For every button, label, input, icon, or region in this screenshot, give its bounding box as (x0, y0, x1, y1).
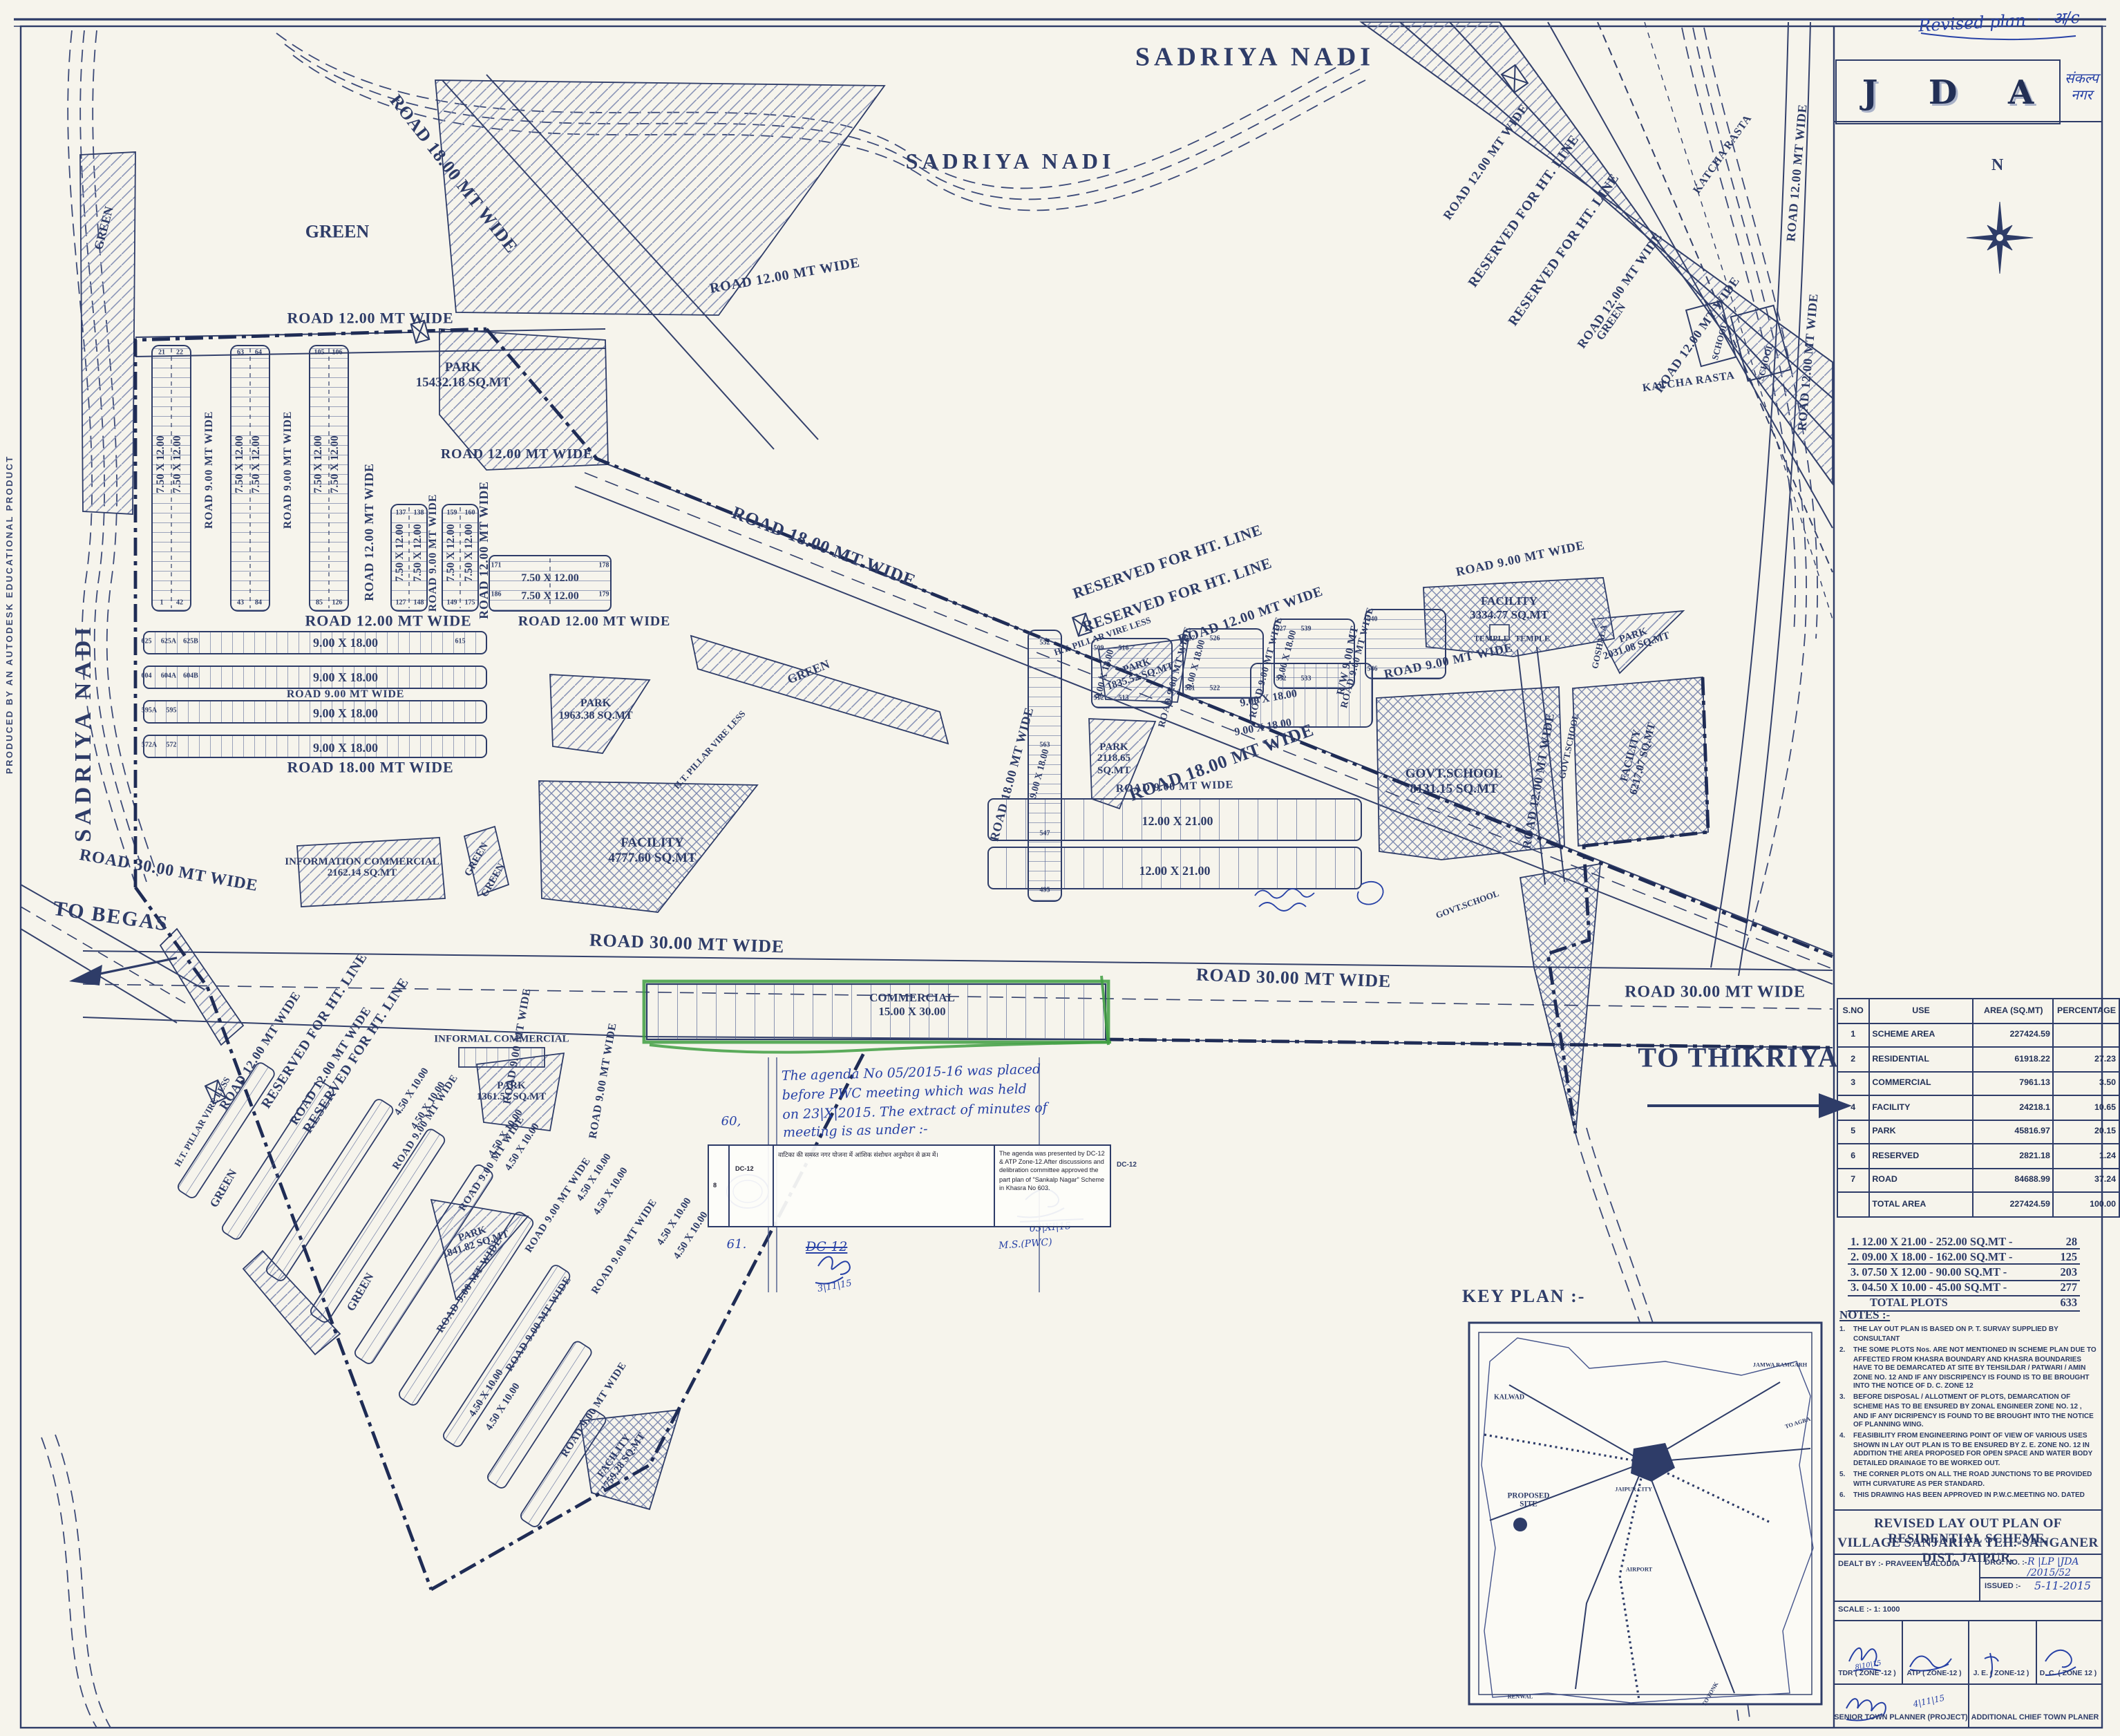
road-label: ROAD 12.00 MT WIDE (518, 614, 670, 630)
area-table-row: 1SCHEME AREA227424.59 (1837, 1023, 2119, 1047)
handwritten-hindi-name: संकल्प नगर (2065, 72, 2099, 105)
drg-no-value: R |LP |JDA /2015/52 (2027, 1556, 2102, 1578)
area-table-row: 7ROAD84688.9937.24 (1837, 1168, 2119, 1192)
plot-dimension-label: 7.50 X 12.00 (464, 524, 476, 582)
plot-number: 160 (465, 510, 475, 518)
commercial-strip (459, 976, 1111, 1067)
road-label: ROAD 12.00 MT WIDE (305, 614, 472, 631)
plot-number: 149 (447, 600, 457, 607)
plot-number: 521 (1185, 686, 1195, 693)
plot-summary-row: 3. 07.50 X 12.00 - 90.00 SQ.MT -203 (1848, 1265, 2080, 1281)
plot-dimension-label: 9.00 X 18.00 (313, 670, 378, 684)
plot-dimension-label: 7.50 X 12.00 (155, 435, 168, 493)
note-item: 5.THE CORNER PLOTS ON ALL THE ROAD JUNCT… (1839, 1471, 2097, 1489)
road-label: ROAD 12.00 MT WIDE (362, 463, 376, 601)
plot-dimension-label: 9.00 X 18.00 (313, 706, 378, 720)
road-label: ROAD 12.00 MT WIDE (441, 447, 593, 462)
plot-number: 178 (599, 563, 609, 570)
plot-number: 532 (1276, 676, 1287, 683)
area-label: FACILITY 4777.60 SQ.MT (608, 837, 696, 867)
plot-number: 513 (1119, 695, 1129, 703)
area-label: INFORMATION COMMERCIAL 2162.14 SQ.MT (285, 856, 439, 880)
note-item: 2.THE SOME PLOTS Nos. ARE NOT MENTIONED … (1839, 1346, 2097, 1392)
diagonal-strips (176, 1061, 608, 1529)
jda-letter: J (1862, 72, 1878, 112)
area-table-row: 5PARK45816.9720.15 (1837, 1120, 2119, 1144)
plot-summary-row: 3. 04.50 X 10.00 - 45.00 SQ.MT -277 (1848, 1281, 2080, 1296)
plot-dimension-label: 7.50 X 12.00 (446, 524, 458, 582)
key-plan-heading: KEY PLAN :- (1462, 1285, 1586, 1308)
note-item: 3.BEFORE DISPOSAL / ALLOTMENT OF PLOTS, … (1839, 1394, 2097, 1431)
plot-dimension-label: 7.50 X 12.00 (413, 524, 425, 582)
drawing-sheet: SADRIYA NADISADRIYA NADISADRIYA NADITO B… (0, 0, 2120, 1736)
plot-summary: 1. 12.00 X 21.00 - 252.00 SQ.MT -282. 09… (1848, 1234, 2080, 1312)
key-plan-label: JAMWA RAMGARH (1753, 1362, 1807, 1368)
plot-number: 171 (491, 563, 502, 570)
producer-credit: PRODUCED BY AN AUTODESK EDUCATIONAL PROD… (6, 455, 15, 774)
north-label: N (1991, 155, 2003, 176)
key-plan-label: RENWAL (1508, 1694, 1533, 1700)
plot-dimension-label: 9.00 X 18.00 (313, 636, 378, 650)
area-label: PARK 15432.18 SQ.MT (416, 361, 511, 391)
plot-number: 137 (396, 510, 406, 518)
road-label: ROAD 9.00 MT WIDE (204, 411, 216, 529)
area-table-row: 4FACILITY24218.110.65 (1837, 1095, 2119, 1120)
area-label: PARK 1361.57 SQ.MT (477, 1080, 546, 1104)
slip-hindi-text: वाटिका की समस्त नगर योजना में आंशिक संशो… (778, 1151, 988, 1161)
road-label: ROAD 18.00 MT WIDE (287, 760, 454, 777)
key-plan-label: PROPOSED SITE (1508, 1493, 1550, 1510)
road-label: ROAD 12.00 MT WIDE (287, 311, 454, 328)
note-item: 4.FEASIBILITY FROM ENGINEERING POINT OF … (1839, 1433, 2097, 1469)
plot-number: 604A (161, 673, 176, 681)
plot-number: 138 (414, 510, 424, 518)
key-plan-label: JAIPUR CITY (1615, 1487, 1652, 1493)
river-label: SADRIYA NADI (906, 151, 1115, 176)
plot-number: 84 (255, 600, 262, 607)
sig-chief-planner: ADDITIONAL CHIEF TOWN PLANER (1968, 1714, 2102, 1722)
plot-number: 604 (142, 673, 152, 681)
road-label: ROAD 30.00 MT WIDE (1625, 983, 1806, 1002)
handwritten-date: 61. (727, 1238, 747, 1252)
plot-summary-row: 1. 12.00 X 21.00 - 252.00 SQ.MT -28 (1848, 1234, 2080, 1249)
plot-number: 105 (314, 350, 325, 357)
plot-number: 106 (332, 350, 343, 357)
area-label: GREEN (305, 222, 369, 242)
plot-number: 495 (1040, 887, 1050, 895)
sig-tdr: TDR ( ZONE -12 ) (1834, 1670, 1900, 1678)
plot-number: 64 (255, 350, 262, 357)
plot-dimension-label: 7.50 X 12.00 (521, 591, 579, 603)
slip-right-tag: DC-12 (1117, 1161, 1137, 1169)
plot-number: 22 (176, 350, 183, 357)
notes-block: NOTES :- 1.THE LAY OUT PLAN IS BASED ON … (1839, 1308, 2097, 1502)
area-table-row: 2RESIDENTIAL61918.2227.23 (1837, 1047, 2119, 1071)
plot-dimension-label: 7.50 X 12.00 (313, 435, 325, 493)
plot-number: 159 (447, 510, 457, 518)
handwritten-dc12: DC-12 (806, 1240, 847, 1255)
river-label: SADRIYA NADI (70, 623, 96, 842)
area-label: FACILITY 3334.77 SQ.MT (1470, 595, 1549, 621)
plot-number: 615 (455, 639, 466, 646)
key-plan-map (1469, 1323, 1821, 1704)
key-plan-label: KALWAD (1494, 1395, 1524, 1402)
plot-dimension-label: 12.00 X 21.00 (1139, 864, 1211, 878)
plot-summary-row: 2. 09.00 X 18.00 - 162.00 SQ.MT -125 (1848, 1249, 2080, 1265)
issued-value: 5-11-2015 (2034, 1580, 2091, 1592)
area-label: PARK 2118.65 SQ.MT (1097, 742, 1130, 776)
north-compass-icon (1967, 202, 2033, 274)
slip-zone: DC-12 (735, 1165, 754, 1172)
area-label: TEMPLE TEMPLE (1474, 635, 1550, 644)
plot-dimension-label: 7.50 X 12.00 (330, 435, 342, 493)
area-table-row: 3COMMERCIAL7961.133.50 (1837, 1071, 2119, 1095)
slip-sno: 8 (713, 1182, 717, 1189)
area-label: GOVT.SCHOOL 8131.15 SQ.MT (1406, 768, 1503, 798)
area-label: PARK 1963.38 SQ.MT (558, 698, 632, 723)
plot-dimension-label: 7.50 X 12.00 (234, 435, 247, 493)
plot-number: 517 (1185, 636, 1195, 643)
sig-senior-planner: SENIOR TOWN PLANNER (PROJECT) (1834, 1714, 1968, 1722)
jda-logo: J D A (1835, 59, 2061, 124)
plot-dimension-label: 7.50 X 12.00 (251, 435, 263, 493)
road-label: ROAD 9.00 MT WIDE (287, 689, 404, 701)
key-plan-label: AIRPORT (1626, 1567, 1652, 1573)
plot-number: 572 (167, 742, 177, 750)
area-label: COMMERCIAL 15.00 X 30.00 (869, 992, 955, 1018)
area-label: INFORMAL COMMERCIAL (434, 1034, 569, 1046)
plot-number: 1 (160, 600, 164, 607)
plot-number: 547 (1040, 831, 1050, 838)
plot-number: 604B (183, 673, 198, 681)
plot-number: 512 (1094, 695, 1104, 703)
plot-number: 85 (316, 600, 323, 607)
dealt-by: DEALT BY :- PRAVEEN BALODIA (1838, 1560, 1960, 1569)
plot-number: 552 (1040, 640, 1050, 648)
sig-dc: D. C. ( ZONE 12 ) (2035, 1670, 2101, 1678)
plot-number: 546 (1367, 666, 1378, 674)
plot-number: 526 (1210, 636, 1220, 643)
plot-number: 595A (142, 708, 157, 715)
plot-number: 522 (1210, 686, 1220, 693)
sig-atp: ATP ( ZONE-12 ) (1901, 1670, 1967, 1678)
road-label: ROAD 9.00 MT WIDE (428, 494, 440, 612)
jda-letter: D (1929, 72, 1958, 112)
plot-number: 21 (158, 350, 165, 357)
scale-label: SCALE :- 1: 1000 (1838, 1606, 1900, 1614)
plot-dimension-label: 7.50 X 12.00 (395, 524, 407, 582)
area-table-row: 6RESERVED2821.181.24 (1837, 1144, 2119, 1168)
plot-number: 516 (1119, 645, 1129, 653)
road-label: ROAD 9.00 MT WIDE (283, 411, 295, 529)
plot-number: 533 (1301, 676, 1312, 683)
plot-number: 563 (1040, 742, 1050, 750)
plot-dimension-label: 7.50 X 12.00 (172, 435, 184, 493)
notes-heading: NOTES :- (1839, 1308, 2097, 1323)
plot-number: 126 (332, 600, 343, 607)
plot-number: 625B (183, 639, 198, 646)
plot-number: 527 (1276, 626, 1287, 634)
plot-number: 63 (237, 350, 244, 357)
drg-no-label: DRG. NO. :- (1985, 1559, 2027, 1567)
issued-label: ISSUED :- (1985, 1583, 2020, 1591)
handwritten-agenda-note: The agenda No 05/2015-16 was placed befo… (782, 1061, 1048, 1144)
plot-number: 625A (161, 639, 176, 646)
pasted-minutes-slip: 8 DC-12 वाटिका की समस्त नगर योजना में आं… (708, 1144, 1111, 1227)
plot-number: 42 (176, 600, 183, 607)
direction-label: TO THIKRIYA (1638, 1044, 1839, 1075)
plot-number: 539 (1301, 626, 1312, 634)
plot-number: 175 (465, 600, 475, 607)
area-statement-table: S.NOUSEAREA (SQ.MT)PERCENTAGE1SCHEME ARE… (1837, 998, 2120, 1217)
plot-number: 572A (142, 742, 157, 750)
note-item: 1.THE LAY OUT PLAN IS BASED ON P. T. SUR… (1839, 1325, 2097, 1343)
area-table-row: TOTAL AREA227424.59100.00 (1837, 1192, 2119, 1216)
handwritten-date: 60, (721, 1115, 741, 1129)
river-label: SADRIYA NADI (1135, 44, 1374, 73)
note-item: 6.THIS DRAWING HAS BEEN APPROVED IN P.W.… (1839, 1491, 2097, 1500)
plot-dimension-label: 9.00 X 18.00 (313, 741, 378, 755)
jda-letter: A (2008, 72, 2034, 112)
plot-number: 625 (142, 639, 152, 646)
plot-number: 127 (396, 600, 406, 607)
plot-dimension-label: 7.50 X 12.00 (521, 573, 579, 585)
plot-number: 595 (167, 708, 177, 715)
plot-number: 509 (1094, 645, 1104, 653)
plot-number: 186 (491, 592, 502, 599)
slip-english-text: The agenda was presented by DC-12 & ATP … (999, 1150, 1106, 1193)
plot-number: 540 (1367, 616, 1378, 624)
plot-number: 43 (237, 600, 244, 607)
plot-number: 148 (414, 600, 424, 607)
road-label: ROAD 12.00 MT WIDE (477, 481, 491, 619)
plot-dimension-label: 12.00 X 21.00 (1142, 814, 1213, 828)
sig-je: J. E. ( ZONE-12 ) (1968, 1670, 2034, 1678)
plot-number: 179 (599, 592, 609, 599)
